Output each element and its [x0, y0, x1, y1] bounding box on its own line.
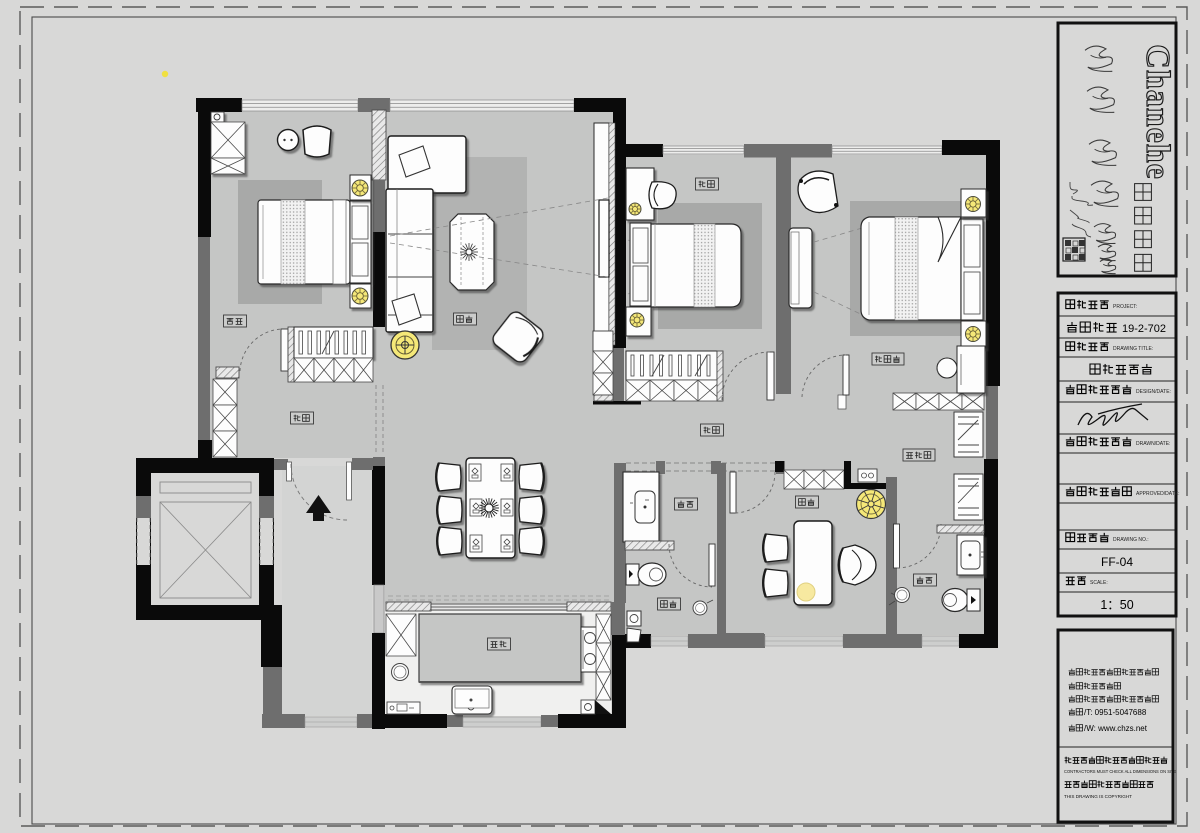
svg-text:1：50: 1：50 — [1100, 598, 1133, 612]
svg-text:DRAWING TITLE:: DRAWING TITLE: — [1113, 346, 1153, 352]
svg-text:PROJECT:: PROJECT: — [1113, 304, 1137, 310]
svg-text:SCALE:: SCALE: — [1090, 580, 1108, 586]
svg-text:/W: www.chzs.net: /W: www.chzs.net — [1084, 724, 1148, 733]
svg-text:APPROVED/DATE:: APPROVED/DATE: — [1136, 491, 1180, 497]
svg-text:CONTRACTORS MUST CHECK ALL DIM: CONTRACTORS MUST CHECK ALL DIMENSIONS ON… — [1064, 769, 1177, 774]
svg-text:DESIGN/DATE:: DESIGN/DATE: — [1136, 389, 1171, 395]
svg-text:Chanehe: Chanehe — [1139, 44, 1176, 179]
svg-text:19-2-702: 19-2-702 — [1122, 323, 1166, 335]
svg-text:DRAWN/DATE:: DRAWN/DATE: — [1136, 441, 1170, 447]
svg-text:FF-04: FF-04 — [1101, 555, 1133, 569]
svg-text:DRAWING NO.:: DRAWING NO.: — [1113, 537, 1149, 543]
svg-text:THIS DRAWING IS COPYRIGHT: THIS DRAWING IS COPYRIGHT — [1064, 794, 1132, 799]
svg-text:/T: 0951-5047688: /T: 0951-5047688 — [1084, 708, 1147, 717]
